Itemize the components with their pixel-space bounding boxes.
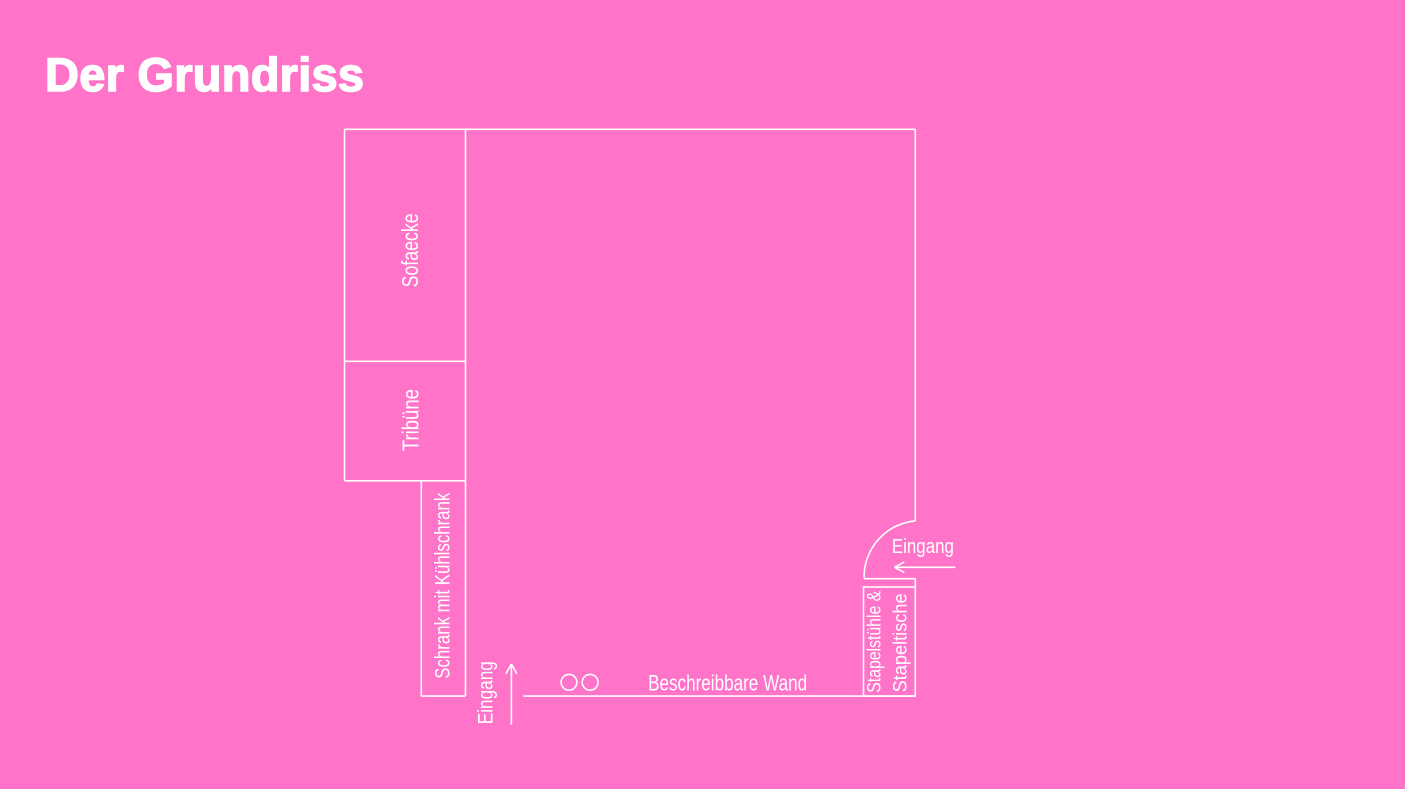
svg-text:Stapeltische: Stapeltische [891,593,912,692]
svg-text:Beschreibbare Wand: Beschreibbare Wand [648,671,807,696]
svg-text:Schrank mit Kühlschrank: Schrank mit Kühlschrank [432,492,455,678]
svg-text:Eingang: Eingang [475,661,498,724]
svg-text:Stapelstühle &: Stapelstühle & [865,591,886,693]
svg-text:Eingang: Eingang [892,536,954,558]
svg-text:Sofaecke: Sofaecke [397,213,423,287]
svg-text:Tribüne: Tribüne [398,389,424,451]
